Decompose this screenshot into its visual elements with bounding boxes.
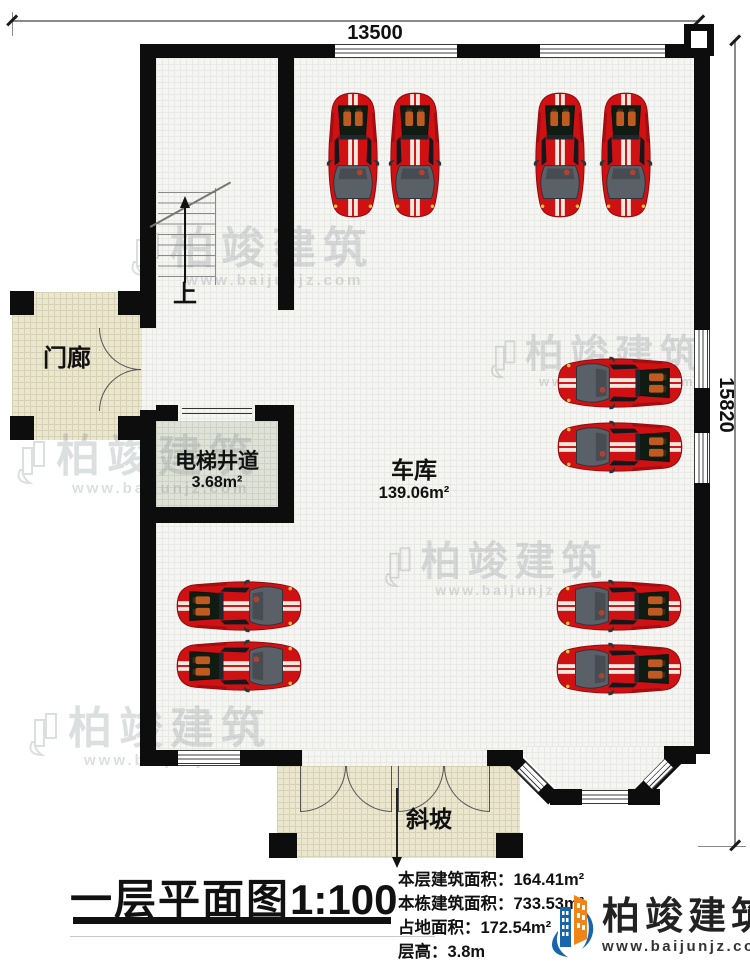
stair-stringer-line (215, 188, 216, 285)
elevator-wall-right (278, 405, 294, 523)
drawing-scale: 1:100 (290, 876, 397, 923)
title-underline-thick (73, 917, 391, 924)
watermark-logo-icon (14, 440, 48, 484)
brand-logo: 柏竣建筑 www.baijunjz.com (546, 893, 750, 959)
car-top-view (597, 92, 655, 218)
wall-top-left (140, 44, 335, 58)
elevator-wall-stub-left (156, 405, 178, 421)
slope-column (496, 833, 523, 858)
stair-up-arrowhead (180, 196, 190, 208)
car-top-view (557, 354, 683, 412)
brand-text-block: 柏竣建筑 www.baijunjz.com (602, 898, 750, 955)
wall-right-1 (694, 44, 710, 330)
wall-left-upper (140, 44, 156, 328)
wall-right-2 (694, 388, 710, 433)
wall-right-3 (694, 483, 710, 754)
elevator-door-line (182, 413, 252, 414)
info-label: 层高： (398, 943, 448, 961)
brand-logo-icon (546, 893, 598, 959)
dimension-ext-bottom (698, 846, 746, 847)
porch-column (10, 416, 34, 440)
info-label: 本栋建筑面积： (398, 895, 514, 913)
slope-door-threshold (302, 750, 487, 766)
info-label: 本层建筑面积： (398, 871, 514, 889)
elevator-door-line (182, 408, 252, 409)
info-value: 164.41m² (514, 871, 585, 889)
porch-column (118, 416, 142, 440)
info-label: 占地面积： (398, 919, 481, 937)
porch-threshold-floor (140, 328, 156, 410)
slope-label: 斜坡 (393, 807, 465, 832)
window-bottom-left (178, 750, 240, 766)
info-line: 本层建筑面积：164.41m² (398, 868, 584, 892)
wall-bottom-a (140, 750, 178, 766)
elevator-wall-bottom (140, 507, 294, 523)
porch-column (10, 291, 34, 315)
floor-plan-page: 柏竣建筑 www.baijunjz.com 柏竣建筑 www.baijunjz.… (0, 0, 750, 969)
wall-top-mid (457, 44, 540, 58)
bay-wall-bottom-block-1 (550, 789, 582, 805)
car-top-view (324, 92, 382, 218)
elevator-area: 3.68m² (156, 474, 278, 492)
dimension-label-right: 15820 (717, 360, 737, 450)
window-top-1 (335, 44, 457, 58)
car-top-view (557, 418, 683, 476)
brand-url: www.baijunjz.com (602, 938, 750, 955)
window-right-2 (694, 433, 710, 483)
bay-window-bottom (582, 790, 628, 804)
dimension-label-top: 13500 (330, 22, 420, 45)
info-value: 172.54m² (481, 919, 552, 937)
info-value: 3.8m (448, 943, 486, 961)
window-top-2 (540, 44, 665, 58)
porch-label: 门廊 (12, 346, 122, 372)
car-top-view (531, 92, 589, 218)
drawing-title-text: 一层平面图 (70, 876, 290, 923)
wall-bottom-b (240, 750, 302, 766)
wall-interior-vertical (278, 44, 294, 310)
dimension-ext-left (12, 12, 13, 36)
car-top-view (176, 577, 302, 635)
brand-name: 柏竣建筑 (602, 898, 750, 936)
watermark-logo-icon (26, 712, 60, 756)
car-top-view (556, 640, 682, 698)
car-top-view (386, 92, 444, 218)
title-underline-thin (70, 936, 435, 937)
elevator-label: 电梯井道 (154, 450, 280, 473)
stair-up-arrow-line (184, 206, 186, 283)
garage-area: 139.06m² (358, 484, 470, 502)
porch-column (118, 291, 142, 315)
car-top-view (176, 637, 302, 695)
stair-up-label: 上 (170, 282, 200, 308)
window-right-1 (694, 330, 710, 388)
garage-label: 车库 (372, 458, 456, 483)
car-top-view (556, 577, 682, 635)
bay-wall-right-join (664, 746, 696, 764)
corner-pillar-inner (691, 31, 707, 48)
slope-column (269, 833, 297, 858)
